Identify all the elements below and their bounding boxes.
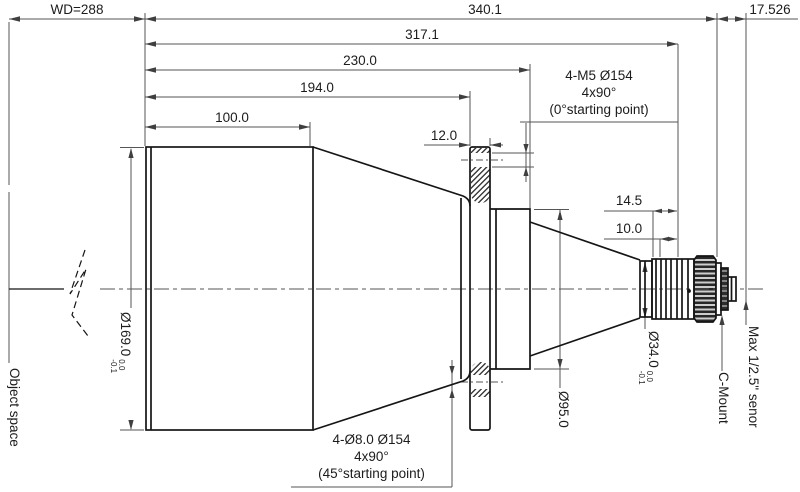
dia-169-tol-lower: -0.1 <box>110 359 118 373</box>
note-m5-line2: 4x90° <box>520 84 678 101</box>
dim-dia-169-text: Ø169.0 <box>118 312 133 356</box>
dim-dia-34: Ø34.00.0-0.1 <box>638 331 661 385</box>
note-m5-holes: 4-M5 Ø154 4x90° (0°starting point) <box>520 67 678 118</box>
dim-317-text: 317.1 <box>405 27 439 42</box>
label-c-mount: C-Mount <box>715 372 731 424</box>
dia-34-tol-lower: -0.1 <box>638 371 646 385</box>
note-d8-line3: (45°starting point) <box>291 465 452 482</box>
dim-194-text: 194.0 <box>300 80 334 95</box>
dim-12: 12.0 <box>424 128 464 144</box>
dim-dia-95-text: Ø95.0 <box>556 391 571 428</box>
dim-14-5-text: 14.5 <box>616 193 642 208</box>
drawing-linework <box>0 0 800 492</box>
dim-194: 194.0 <box>287 80 347 96</box>
note-m5-line1: 4-M5 Ø154 <box>520 67 678 84</box>
dim-total-length: 340.1 <box>455 2 515 18</box>
note-d8-line1: 4-Ø8.0 Ø154 <box>291 431 452 448</box>
dim-working-distance: WD=288 <box>35 2 119 18</box>
dim-total-length-text: 340.1 <box>468 2 502 17</box>
lens-mechanical-drawing: WD=288 340.1 17.526 317.1 230.0 194.0 10… <box>0 0 800 492</box>
dim-dia-34-text: Ø34.0 <box>646 331 661 368</box>
dimension-lines <box>9 13 798 487</box>
dim-100: 100.0 <box>202 110 262 126</box>
dim-317: 317.1 <box>392 27 452 43</box>
label-max-sensor: Max 1/2.5" senor <box>745 326 761 428</box>
dim-14-5: 14.5 <box>606 193 652 209</box>
note-d8-line2: 4x90° <box>291 448 452 465</box>
dim-100-text: 100.0 <box>215 110 249 125</box>
dim-10-text: 10.0 <box>616 221 642 236</box>
label-c-mount-text: C-Mount <box>716 372 731 424</box>
label-max-sensor-text: Max 1/2.5" senor <box>746 326 761 428</box>
dim-dia-34-tolerance: 0.0-0.1 <box>638 371 653 385</box>
dim-working-distance-text: WD=288 <box>51 2 104 17</box>
dim-230: 230.0 <box>330 53 390 69</box>
note-m5-line3: (0°starting point) <box>520 101 678 118</box>
label-object-space-text: Object space <box>7 368 22 447</box>
dim-flange-to-image: 17.526 <box>740 2 800 18</box>
dim-dia-95: Ø95.0 <box>555 391 571 428</box>
dim-flange-to-image-text: 17.526 <box>749 2 790 17</box>
dia-34-tol-upper: 0.0 <box>646 371 654 385</box>
dim-230-text: 230.0 <box>343 53 377 68</box>
dim-dia-169: Ø169.00.0-0.1 <box>110 312 133 373</box>
note-d8-holes: 4-Ø8.0 Ø154 4x90° (45°starting point) <box>291 431 452 482</box>
dim-dia-169-tolerance: 0.0-0.1 <box>110 359 125 373</box>
dim-10: 10.0 <box>606 221 652 237</box>
label-object-space: Object space <box>6 368 22 447</box>
dim-12-text: 12.0 <box>431 128 457 143</box>
dia-169-tol-upper: 0.0 <box>118 359 126 373</box>
